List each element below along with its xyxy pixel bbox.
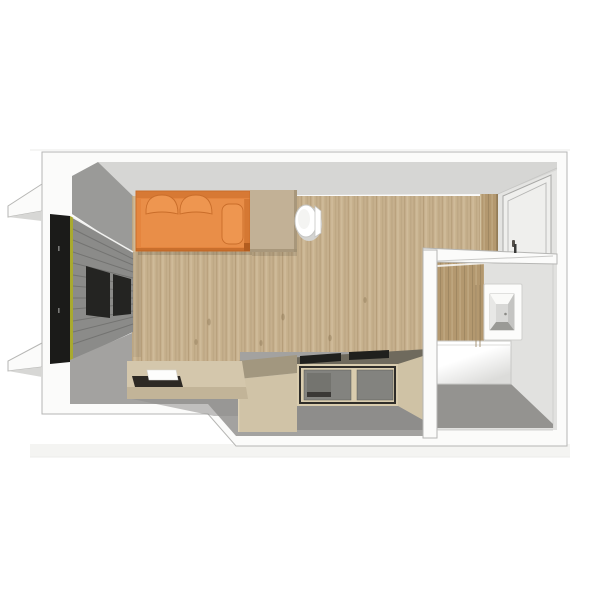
kitchen-door-right xyxy=(357,370,393,400)
bathroom-left-wall xyxy=(423,250,437,438)
sofa-front-edge xyxy=(136,248,250,251)
bolster-pillow xyxy=(222,204,243,244)
side-cabinet xyxy=(250,190,297,256)
accent-green-strip xyxy=(70,216,73,362)
floor-plan-svg: Top-down 3D render of a studio apartment… xyxy=(0,0,600,600)
apartment-unit xyxy=(8,152,567,446)
bathroom-wood-wall xyxy=(437,262,484,345)
floor-plan-render: Top-down 3D render of a studio apartment… xyxy=(0,0,600,600)
shelf-opening-right xyxy=(113,274,131,316)
window-frame-black xyxy=(50,214,70,364)
sofa-corner-foot xyxy=(244,243,250,251)
appliance-vent-bar xyxy=(307,392,331,397)
side-cabinet-top xyxy=(250,190,297,252)
sofa-floor-shadow xyxy=(138,251,252,255)
floor-shadow-near-wardrobe xyxy=(133,252,141,357)
frame-latch-mark-top xyxy=(58,246,60,251)
basin-drain xyxy=(504,313,507,316)
kitchen-cabinets xyxy=(297,356,423,430)
sofa-daybed xyxy=(136,191,252,255)
column-front-face xyxy=(238,373,297,432)
sofa-inner-shadow xyxy=(244,199,250,247)
kitchen-plinth xyxy=(297,406,423,430)
bench-front xyxy=(127,387,248,399)
bathroom xyxy=(423,244,557,438)
bathtub xyxy=(437,341,511,384)
book xyxy=(147,370,178,380)
frame-latch-mark-bottom xyxy=(58,308,60,313)
cabinet-floor-shadow xyxy=(252,252,297,256)
toilet-tank xyxy=(315,206,321,237)
backdrop-bottom-line xyxy=(30,457,570,458)
toilet-bowl-inner xyxy=(298,209,310,229)
backdrop-top-line xyxy=(30,150,570,151)
side-cabinet-bottom-edge xyxy=(250,249,297,252)
low-bench xyxy=(127,361,248,399)
bathroom-door-handle xyxy=(514,244,517,253)
shelf-opening-left xyxy=(86,266,110,318)
